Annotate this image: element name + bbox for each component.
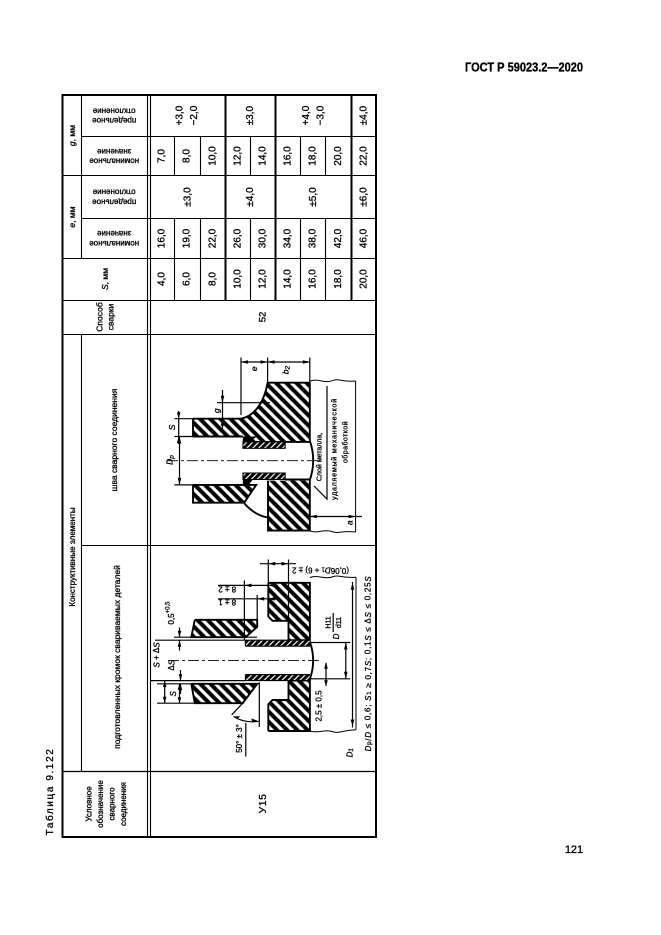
svg-text:20,0: 20,0 <box>358 269 369 289</box>
svg-text:34,0: 34,0 <box>283 228 294 248</box>
svg-text:18,0: 18,0 <box>308 146 319 166</box>
svg-text:b2: b2 <box>281 365 292 374</box>
svg-text:50° ± 3°: 50° ± 3° <box>235 724 244 753</box>
svg-text:е: е <box>249 366 259 371</box>
svg-text:номинальное: номинальное <box>89 239 139 248</box>
svg-text:2,5 ± 0,5: 2,5 ± 0,5 <box>314 690 323 722</box>
svg-text:±5,0: ±5,0 <box>308 187 319 207</box>
svg-text:12,0: 12,0 <box>257 269 268 289</box>
svg-text:±3,0: ±3,0 <box>245 105 256 125</box>
svg-text:H11: H11 <box>325 616 332 628</box>
svg-text:отклонение: отклонение <box>92 188 135 197</box>
svg-text:8 ± 2: 8 ± 2 <box>218 585 236 594</box>
svg-text:У15: У15 <box>257 794 269 814</box>
svg-text:обработкой: обработкой <box>342 421 350 463</box>
svg-text:g, мм: g, мм <box>67 125 77 146</box>
svg-text:е, мм: е, мм <box>67 206 77 227</box>
svg-text:6,0: 6,0 <box>182 272 193 286</box>
svg-text:16,0: 16,0 <box>283 146 294 166</box>
svg-text:Условное: Условное <box>85 786 94 822</box>
svg-text:удаляемый механической: удаляемый механической <box>330 398 338 500</box>
svg-text:d11: d11 <box>336 617 343 628</box>
svg-text:12,0: 12,0 <box>232 146 243 166</box>
svg-text:Dр: Dр <box>165 455 176 465</box>
svg-text:±4,0: ±4,0 <box>245 187 256 207</box>
svg-text:+4,0: +4,0 <box>301 105 312 125</box>
svg-text:26,0: 26,0 <box>232 228 243 248</box>
svg-text:10,0: 10,0 <box>207 146 218 166</box>
svg-text:22,0: 22,0 <box>358 146 369 166</box>
svg-text:номинальное: номинальное <box>89 157 139 166</box>
svg-text:4,0: 4,0 <box>157 272 168 286</box>
svg-text:Слой металла,: Слой металла, <box>316 433 324 482</box>
svg-text:38,0: 38,0 <box>308 228 319 248</box>
svg-text:значение: значение <box>96 229 131 238</box>
svg-text:46,0: 46,0 <box>358 228 369 248</box>
svg-text:сварного: сварного <box>108 787 117 821</box>
svg-text:−2,0: −2,0 <box>189 105 200 125</box>
svg-text:сварки: сварки <box>106 303 116 330</box>
svg-text:16,0: 16,0 <box>157 228 168 248</box>
svg-text:20,0: 20,0 <box>333 146 344 166</box>
svg-text:предельное: предельное <box>92 197 137 206</box>
svg-text:D1: D1 <box>346 748 356 757</box>
svg-text:Dр/D ≤ 0,6; S1 ≥ 0,7S; 0,1S: Dр/D ≤ 0,6; S1 ≥ 0,7S; 0,1S ≤ ΔS ≤ 0,25S <box>364 576 374 752</box>
svg-text:отклонение: отклонение <box>92 106 135 115</box>
svg-text:14,0: 14,0 <box>283 269 294 289</box>
svg-text:ГОСТ Р 59023.2—2020: ГОСТ Р 59023.2—2020 <box>465 60 583 75</box>
svg-text:(0,06D1 + 6) ± 2: (0,06D1 + 6) ± 2 <box>292 566 349 576</box>
svg-text:8,0: 8,0 <box>207 272 218 286</box>
svg-text:подготовленных кромок сваривае: подготовленных кромок свариваемых детале… <box>112 565 122 749</box>
svg-text:предельное: предельное <box>92 116 137 125</box>
svg-text:−3,0: −3,0 <box>315 105 326 125</box>
svg-text:±6,0: ±6,0 <box>358 187 369 207</box>
svg-text:19,0: 19,0 <box>182 228 193 248</box>
svg-text:0,5+0,5: 0,5+0,5 <box>166 601 177 625</box>
svg-text:±4,0: ±4,0 <box>358 105 369 125</box>
svg-text:шва сварного соединения: шва сварного соединения <box>109 388 119 491</box>
svg-text:10,0: 10,0 <box>232 269 243 289</box>
svg-text:S, мм: S, мм <box>100 268 110 290</box>
svg-text:а: а <box>344 520 354 525</box>
svg-text:22,0: 22,0 <box>207 228 218 248</box>
svg-text:7,0: 7,0 <box>157 149 168 163</box>
svg-text:соединения: соединения <box>119 782 128 826</box>
svg-text:52: 52 <box>258 312 269 323</box>
svg-text:Таблица 9.122: Таблица 9.122 <box>44 748 56 836</box>
svg-text:S: S <box>167 424 177 430</box>
svg-text:S: S <box>169 690 178 696</box>
svg-text:30,0: 30,0 <box>257 228 268 248</box>
svg-text:+3,0: +3,0 <box>175 105 186 125</box>
svg-text:42,0: 42,0 <box>333 228 344 248</box>
svg-text:18,0: 18,0 <box>333 269 344 289</box>
svg-text:g: g <box>212 408 222 413</box>
svg-text:Конструктивные элементы: Конструктивные элементы <box>68 507 77 606</box>
svg-text:8,0: 8,0 <box>182 149 193 163</box>
svg-text:D: D <box>332 633 341 639</box>
svg-text:16,0: 16,0 <box>308 269 319 289</box>
svg-text:±3,0: ±3,0 <box>182 187 193 207</box>
svg-text:S + ΔS: S + ΔS <box>152 642 161 668</box>
svg-text:ΔS: ΔS <box>167 659 176 670</box>
svg-text:14,0: 14,0 <box>257 146 268 166</box>
svg-text:обозначение: обозначение <box>96 780 105 828</box>
svg-text:значение: значение <box>96 147 131 156</box>
svg-text:8 ± 1: 8 ± 1 <box>218 598 236 607</box>
svg-text:Способ: Способ <box>95 302 105 332</box>
svg-text:121: 121 <box>565 844 583 856</box>
